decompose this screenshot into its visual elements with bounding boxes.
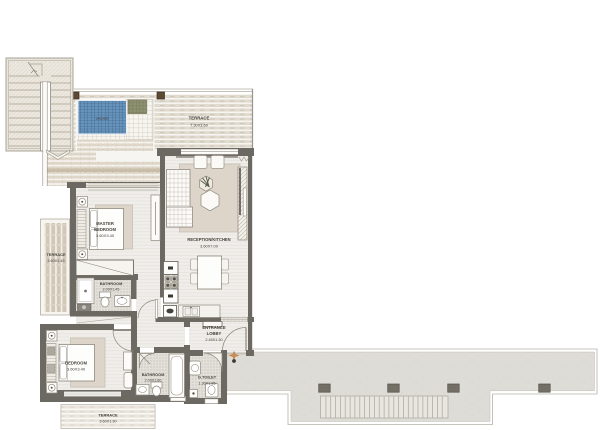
svg-text:3.60X3.40: 3.60X3.40 (67, 367, 86, 372)
svg-text:TERRACE: TERRACE (46, 252, 66, 257)
svg-text:RECEPTION/KITCHEN: RECEPTION/KITCHEN (187, 237, 230, 242)
svg-text:1.30X1.85: 1.30X1.85 (198, 382, 215, 386)
svg-text:G.TOILET: G.TOILET (198, 375, 217, 380)
svg-text:TERRACE: TERRACE (98, 413, 118, 418)
svg-text:BEDROOM: BEDROOM (94, 227, 116, 232)
svg-text:2.00X1.45: 2.00X1.45 (103, 288, 120, 292)
svg-text:3.60X1.45: 3.60X1.45 (47, 259, 64, 263)
svg-text:3.60X1.30: 3.60X1.30 (99, 420, 116, 424)
svg-text:2.00X1.60: 2.00X1.60 (145, 379, 162, 383)
svg-text:BATHROOM: BATHROOM (100, 281, 123, 286)
svg-text:7.30X3.60: 7.30X3.60 (190, 123, 209, 128)
svg-text:MASTER: MASTER (96, 221, 114, 226)
svg-text:TERRACE: TERRACE (189, 116, 210, 121)
svg-text:3.60X7.00: 3.60X7.00 (200, 244, 219, 249)
svg-text:3.60X3.40: 3.60X3.40 (96, 233, 115, 238)
svg-text:BATHROOM: BATHROOM (142, 372, 165, 377)
svg-text:BEDROOM: BEDROOM (65, 361, 87, 366)
svg-text:ENTRANCE: ENTRANCE (202, 325, 225, 330)
svg-text:LOBBY: LOBBY (207, 331, 222, 336)
svg-text:JACUZZI: JACUZZI (96, 117, 109, 121)
svg-text:2.45X1.30: 2.45X1.30 (205, 338, 222, 342)
